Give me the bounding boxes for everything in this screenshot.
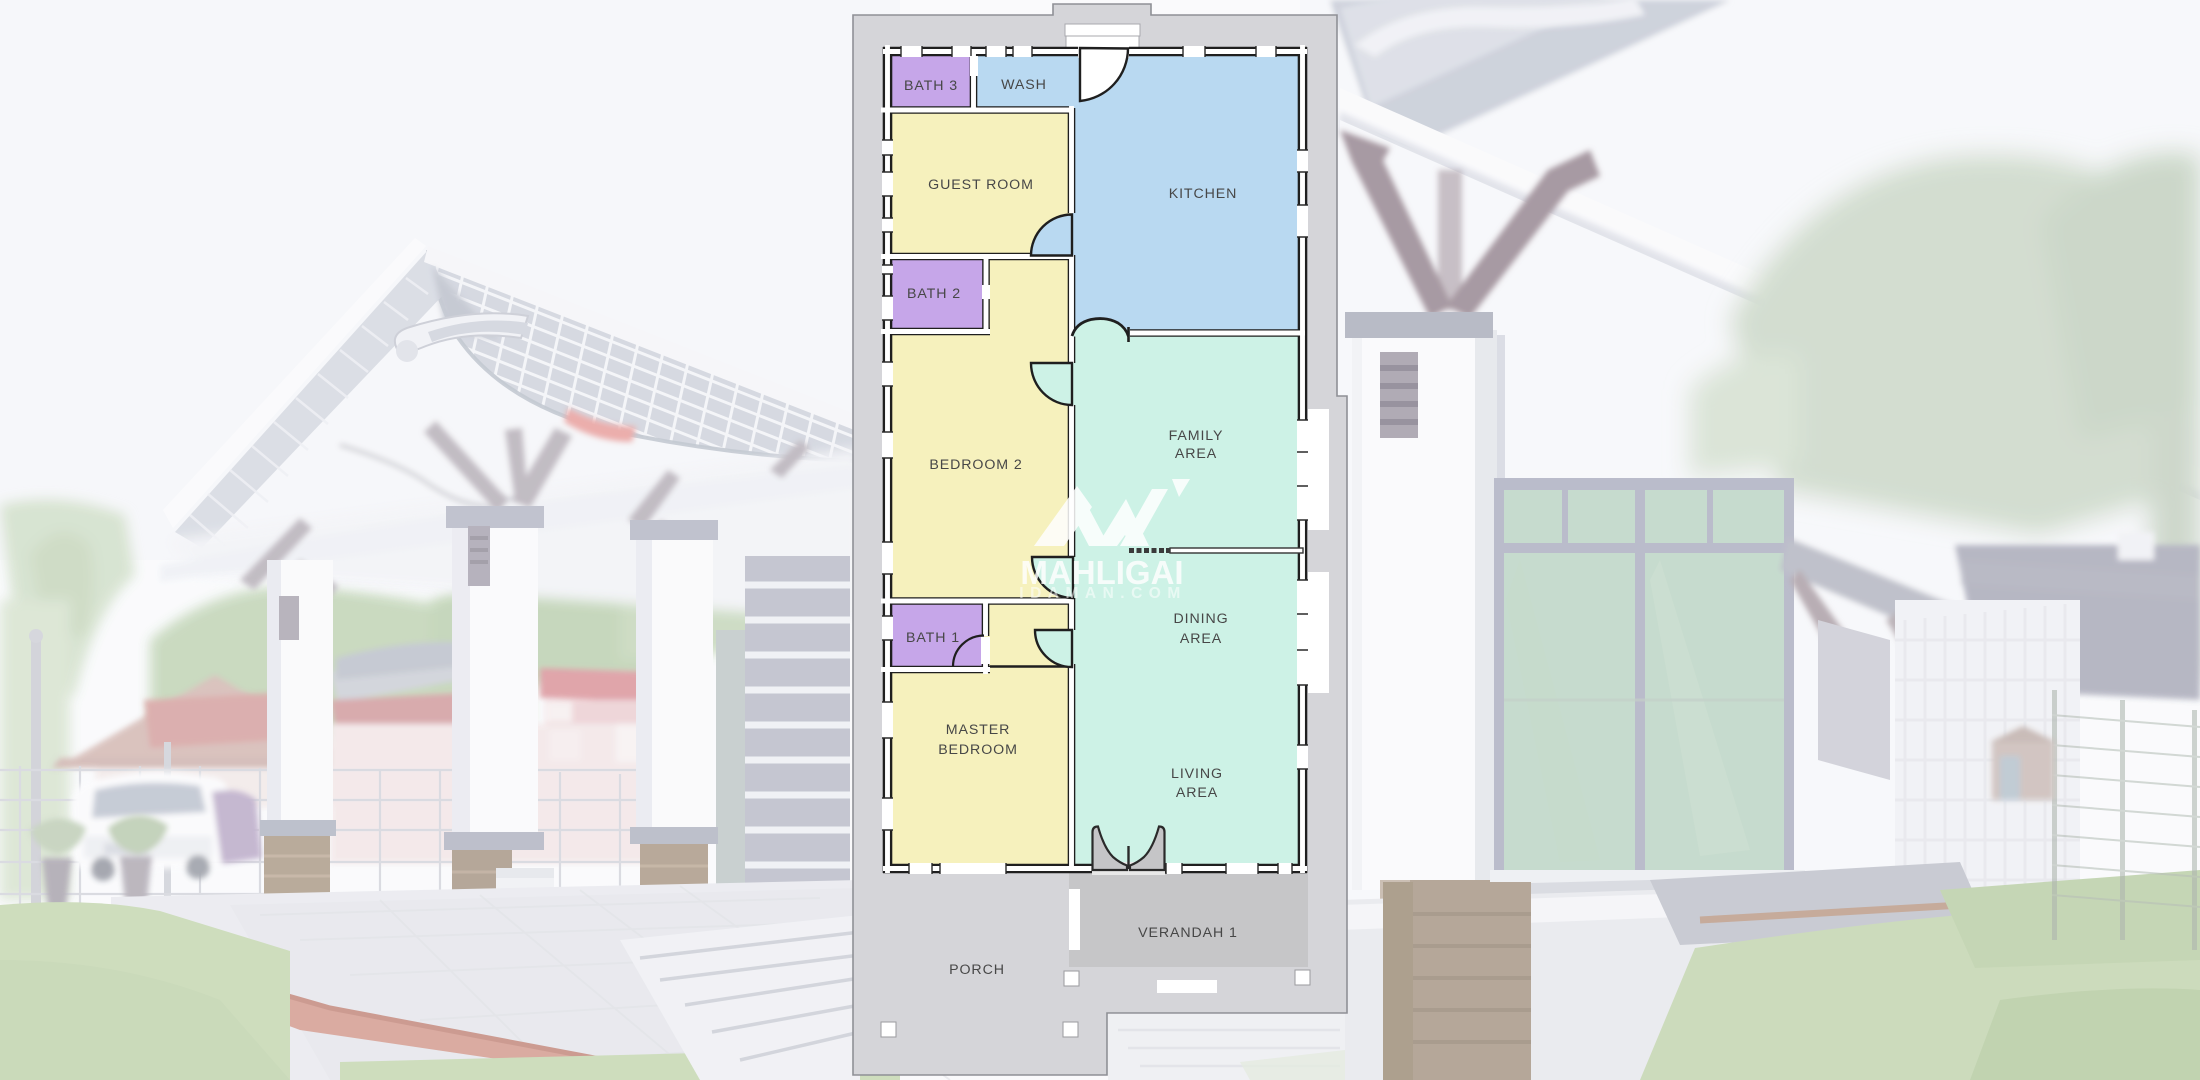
- svg-text:BATH 2: BATH 2: [907, 286, 961, 302]
- svg-text:FAMILY: FAMILY: [1169, 428, 1224, 444]
- svg-text:DINING: DINING: [1173, 611, 1228, 627]
- svg-text:AREA: AREA: [1176, 785, 1218, 801]
- svg-text:AREA: AREA: [1175, 446, 1217, 462]
- svg-text:GUEST ROOM: GUEST ROOM: [928, 177, 1034, 193]
- svg-text:LIVING: LIVING: [1171, 766, 1223, 782]
- svg-text:WASH: WASH: [1001, 77, 1047, 93]
- svg-text:PORCH: PORCH: [949, 962, 1005, 978]
- svg-text:BATH 3: BATH 3: [904, 78, 958, 94]
- svg-text:VERANDAH 1: VERANDAH 1: [1138, 925, 1238, 941]
- svg-text:BEDROOM 2: BEDROOM 2: [929, 457, 1022, 473]
- svg-text:BATH 1: BATH 1: [906, 630, 960, 646]
- svg-text:BEDROOM: BEDROOM: [938, 742, 1018, 758]
- svg-text:AREA: AREA: [1180, 631, 1222, 647]
- svg-text:KITCHEN: KITCHEN: [1169, 186, 1238, 202]
- svg-text:MASTER: MASTER: [946, 722, 1011, 738]
- svg-text:IDAMAN.COM: IDAMAN.COM: [1019, 585, 1186, 602]
